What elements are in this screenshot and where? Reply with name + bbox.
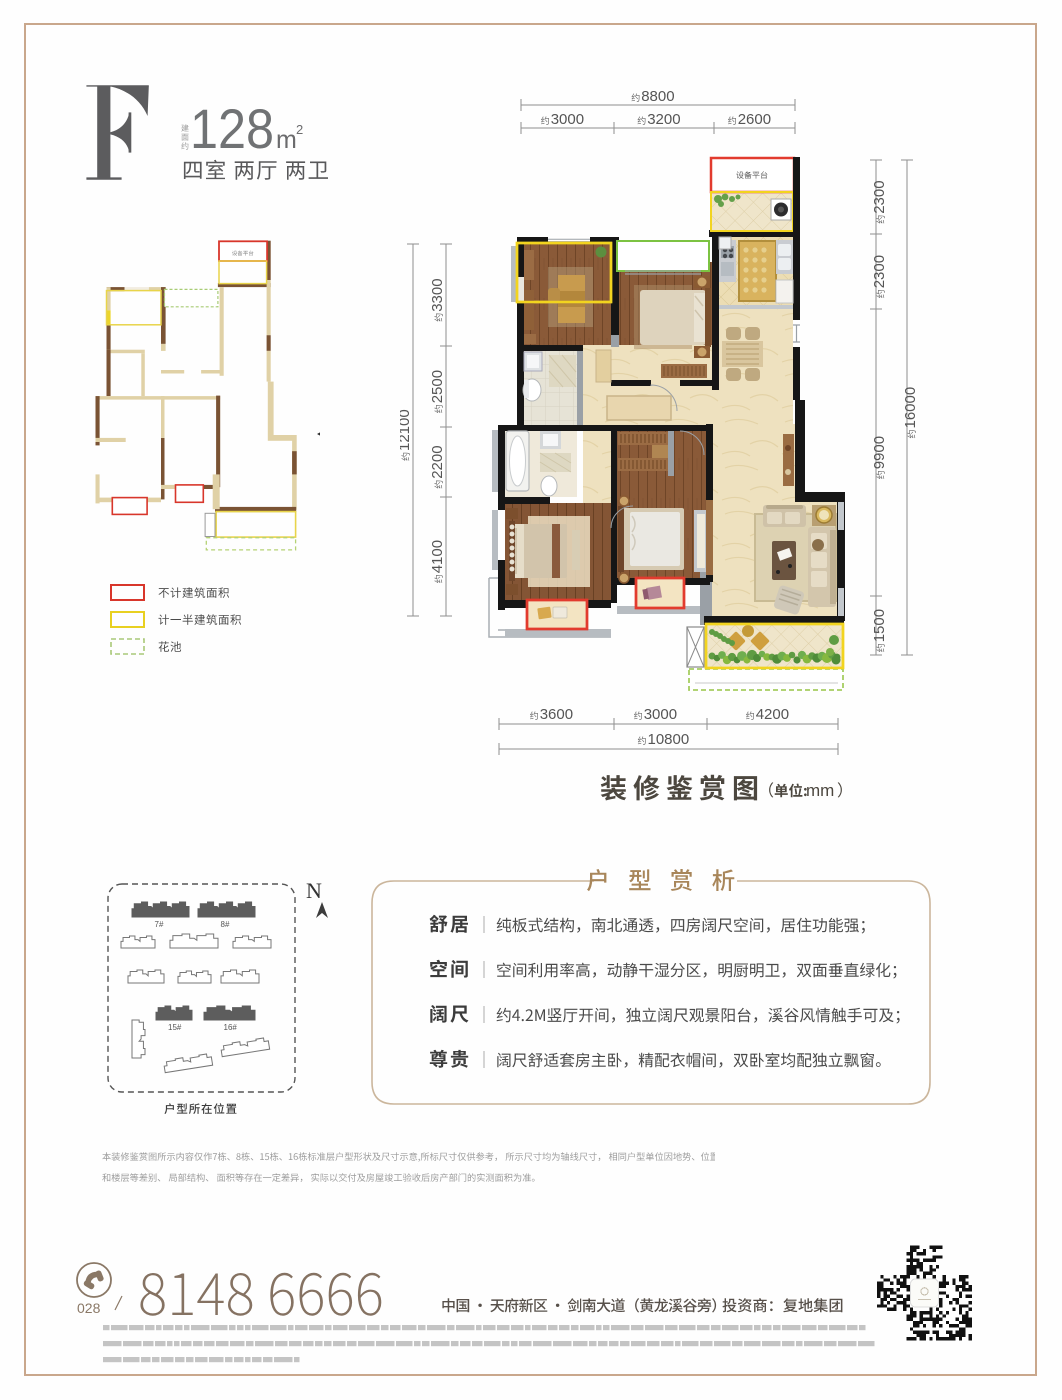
svg-text:3000: 3000: [551, 111, 584, 128]
svg-text:16000: 16000: [902, 387, 919, 429]
svg-text:N: N: [306, 878, 322, 903]
svg-text:m: m: [276, 126, 297, 154]
svg-text:3600: 3600: [540, 706, 573, 723]
svg-text:128: 128: [190, 99, 274, 161]
svg-text:10800: 10800: [648, 731, 690, 748]
svg-text:3200: 3200: [647, 111, 680, 128]
svg-text:2200: 2200: [429, 445, 446, 478]
svg-text:1500: 1500: [871, 609, 888, 642]
svg-text:16#: 16#: [224, 1023, 238, 1032]
svg-text:2600: 2600: [738, 111, 771, 128]
svg-text:2300: 2300: [871, 255, 888, 288]
svg-text:8800: 8800: [641, 88, 674, 105]
svg-text:8#: 8#: [221, 920, 230, 929]
svg-text:3300: 3300: [429, 278, 446, 311]
svg-text:028: 028: [77, 1300, 101, 1316]
svg-text:4200: 4200: [756, 706, 789, 723]
svg-text:3000: 3000: [644, 706, 677, 723]
svg-text:4100: 4100: [429, 540, 446, 573]
svg-text:2500: 2500: [429, 370, 446, 403]
svg-text:2300: 2300: [871, 180, 888, 213]
svg-text:15#: 15#: [168, 1023, 182, 1032]
svg-text:12100: 12100: [400, 409, 413, 451]
svg-text:7#: 7#: [155, 920, 164, 929]
svg-text:9900: 9900: [871, 436, 888, 469]
svg-text:2: 2: [296, 122, 303, 137]
svg-text:mm: mm: [806, 781, 834, 800]
